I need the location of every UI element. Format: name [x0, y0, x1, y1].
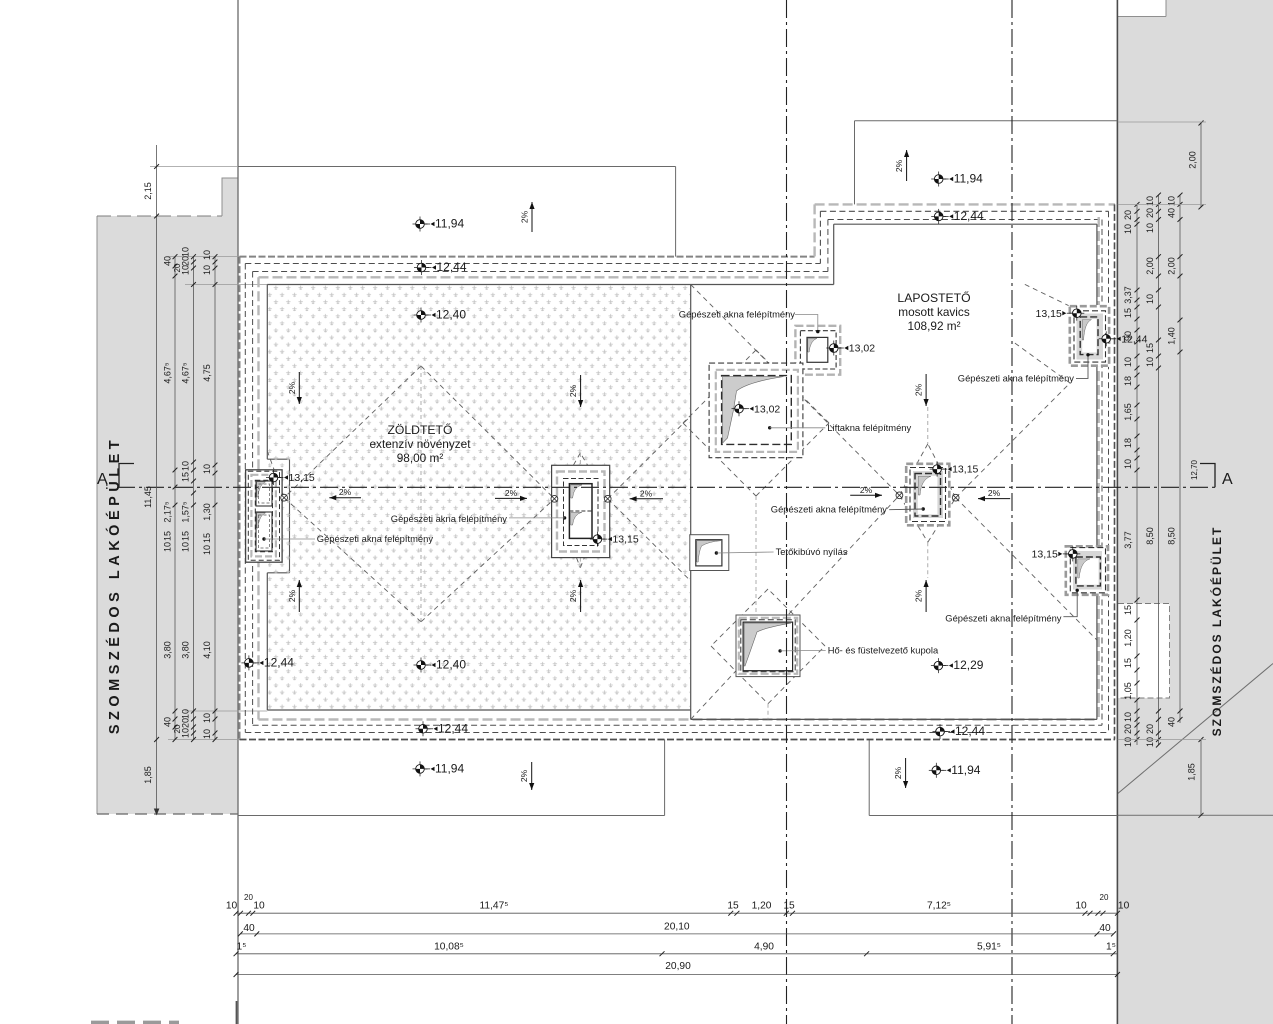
svg-text:2,00: 2,00: [1188, 151, 1198, 169]
svg-text:Gépészeti akna felépítmény: Gépészeti akna felépítmény: [945, 612, 1062, 623]
svg-text:2%: 2%: [894, 159, 904, 172]
svg-text:10,08⁵: 10,08⁵: [434, 941, 464, 952]
svg-text:10: 10: [1123, 357, 1133, 367]
svg-text:1⁵: 1⁵: [1106, 941, 1116, 952]
svg-text:15: 15: [202, 533, 212, 543]
svg-text:2,00: 2,00: [1166, 257, 1176, 275]
svg-text:15: 15: [1123, 605, 1133, 615]
svg-text:4,75: 4,75: [202, 364, 212, 382]
svg-text:4,90: 4,90: [754, 941, 774, 952]
svg-text:10: 10: [1075, 901, 1087, 912]
svg-text:Liftakna felépítmény: Liftakna felépítmény: [827, 422, 911, 433]
svg-text:10: 10: [1145, 294, 1155, 304]
svg-text:2,17⁵: 2,17⁵: [163, 501, 173, 523]
svg-text:20: 20: [1123, 210, 1133, 220]
svg-text:1⁵: 1⁵: [237, 941, 247, 952]
svg-text:10: 10: [163, 542, 173, 552]
svg-text:4,67⁵: 4,67⁵: [163, 362, 173, 384]
svg-text:7,12⁵: 7,12⁵: [927, 901, 951, 912]
svg-text:10: 10: [181, 265, 191, 275]
svg-text:10: 10: [202, 713, 212, 723]
svg-text:13,15: 13,15: [1032, 549, 1058, 561]
svg-text:20: 20: [1100, 893, 1109, 902]
svg-text:13,02: 13,02: [754, 403, 780, 415]
svg-text:ZÖLDTETŐ: ZÖLDTETŐ: [387, 422, 452, 437]
svg-text:15: 15: [181, 531, 191, 541]
svg-text:18: 18: [1123, 376, 1133, 386]
svg-text:15: 15: [163, 531, 173, 541]
svg-text:11,94: 11,94: [435, 762, 464, 776]
svg-text:15: 15: [1145, 343, 1155, 353]
svg-text:90: 90: [1123, 331, 1133, 341]
svg-text:18: 18: [1123, 438, 1133, 448]
svg-text:11,94: 11,94: [951, 763, 980, 777]
svg-text:2%: 2%: [287, 589, 297, 602]
svg-text:10: 10: [202, 265, 212, 275]
svg-text:10: 10: [1145, 737, 1155, 747]
svg-text:13,02: 13,02: [849, 343, 875, 355]
svg-text:2%: 2%: [287, 381, 297, 394]
svg-text:4,67⁵: 4,67⁵: [181, 362, 191, 384]
svg-text:2%: 2%: [914, 589, 924, 602]
svg-text:1,20: 1,20: [1123, 629, 1133, 647]
svg-text:10: 10: [226, 901, 238, 912]
svg-text:LAPOSTETŐ: LAPOSTETŐ: [897, 290, 970, 305]
svg-text:20: 20: [1145, 724, 1155, 734]
svg-text:1,57⁵: 1,57⁵: [181, 501, 191, 523]
svg-text:20: 20: [1145, 208, 1155, 218]
svg-text:2%: 2%: [505, 488, 518, 498]
svg-text:2%: 2%: [640, 488, 653, 498]
svg-text:10: 10: [1123, 459, 1133, 469]
svg-text:40: 40: [163, 256, 173, 266]
svg-text:12,44: 12,44: [264, 656, 294, 670]
svg-text:Hő- és füstelvezető kupola: Hő- és füstelvezető kupola: [828, 644, 939, 655]
svg-text:1,30: 1,30: [202, 503, 212, 521]
svg-text:10: 10: [253, 901, 265, 912]
svg-text:Gépészeti akna felépítmény: Gépészeti akna felépítmény: [317, 533, 434, 544]
svg-text:15: 15: [1123, 658, 1133, 668]
svg-text:3,80: 3,80: [163, 641, 173, 659]
svg-text:40: 40: [163, 717, 173, 727]
svg-text:40: 40: [1166, 208, 1176, 218]
svg-text:1,40: 1,40: [1166, 327, 1176, 345]
svg-text:108,92 m²: 108,92 m²: [907, 319, 960, 333]
svg-text:8,50: 8,50: [1166, 527, 1176, 545]
svg-text:15: 15: [783, 901, 795, 912]
svg-text:20: 20: [181, 718, 191, 728]
svg-text:2%: 2%: [520, 210, 530, 223]
svg-text:Gépészeti akna felépítmény: Gépészeti akna felépítmény: [958, 372, 1075, 383]
svg-text:2%: 2%: [568, 384, 578, 397]
svg-text:2%: 2%: [519, 769, 529, 782]
svg-text:A: A: [97, 471, 108, 488]
svg-text:12,44: 12,44: [437, 260, 467, 274]
svg-text:2,15: 2,15: [143, 182, 153, 200]
svg-text:40: 40: [1166, 717, 1176, 727]
svg-text:20: 20: [181, 256, 191, 266]
svg-text:11,47⁵: 11,47⁵: [480, 901, 509, 912]
svg-text:12,44: 12,44: [954, 209, 984, 223]
svg-text:2%: 2%: [914, 383, 924, 396]
svg-text:10: 10: [202, 729, 212, 739]
svg-text:1,20: 1,20: [752, 901, 772, 912]
svg-text:2%: 2%: [568, 589, 578, 602]
svg-text:5,91⁵: 5,91⁵: [977, 941, 1001, 952]
svg-text:12,70: 12,70: [1190, 459, 1199, 480]
svg-text:13,15: 13,15: [612, 534, 638, 546]
svg-text:40: 40: [1099, 923, 1111, 934]
svg-text:15: 15: [727, 901, 739, 912]
svg-text:1,85: 1,85: [1187, 763, 1197, 781]
svg-text:2%: 2%: [339, 487, 352, 497]
svg-text:2%: 2%: [988, 488, 1001, 498]
svg-text:Gépészeti akna felépítmény: Gépészeti akna felépítmény: [679, 309, 796, 320]
svg-text:1,05: 1,05: [1123, 682, 1133, 700]
svg-text:20: 20: [244, 893, 253, 902]
svg-text:10: 10: [202, 464, 212, 474]
svg-text:12,44: 12,44: [438, 721, 468, 735]
svg-text:10: 10: [1123, 224, 1133, 234]
svg-text:3,80: 3,80: [181, 641, 191, 659]
svg-text:15: 15: [181, 472, 191, 482]
svg-text:3,37: 3,37: [1123, 286, 1133, 304]
svg-text:A: A: [1222, 471, 1233, 488]
svg-text:20,90: 20,90: [665, 961, 691, 972]
svg-text:20,10: 20,10: [664, 921, 690, 932]
svg-text:11,94: 11,94: [954, 172, 983, 186]
svg-text:2%: 2%: [860, 485, 873, 495]
svg-text:extenzív növényzet: extenzív növényzet: [370, 437, 472, 451]
svg-text:SZOMSZÉDOS LAKÓÉPÜLET: SZOMSZÉDOS LAKÓÉPÜLET: [105, 436, 123, 734]
svg-text:Gépészeti akna felépítmény: Gépészeti akna felépítmény: [771, 504, 888, 515]
svg-text:12,29: 12,29: [953, 658, 983, 672]
svg-text:10: 10: [1118, 901, 1130, 912]
svg-text:10: 10: [1123, 737, 1133, 747]
svg-text:11,45: 11,45: [143, 486, 153, 508]
svg-text:12,44: 12,44: [955, 724, 985, 738]
svg-text:11,94: 11,94: [435, 217, 464, 231]
svg-text:SZOMSZÉDOS LAKÓÉPÜLET: SZOMSZÉDOS LAKÓÉPÜLET: [1209, 526, 1224, 737]
svg-text:1,65: 1,65: [1123, 403, 1133, 421]
svg-text:13,15: 13,15: [952, 464, 978, 476]
svg-text:10: 10: [181, 709, 191, 719]
svg-text:10: 10: [1123, 712, 1133, 722]
svg-text:3,77: 3,77: [1123, 531, 1133, 549]
svg-text:12,40: 12,40: [436, 308, 466, 322]
svg-text:4,10: 4,10: [202, 641, 212, 659]
svg-text:Gépészeti akna felépítmény: Gépészeti akna felépítmény: [391, 513, 508, 524]
svg-text:13,15: 13,15: [289, 472, 315, 484]
svg-text:1,85: 1,85: [143, 766, 153, 784]
svg-text:8,50: 8,50: [1145, 527, 1155, 545]
svg-text:2%: 2%: [893, 766, 903, 779]
svg-text:10: 10: [181, 542, 191, 552]
svg-text:Tetőkibúvó nyílás: Tetőkibúvó nyílás: [776, 546, 848, 557]
svg-text:10: 10: [202, 545, 212, 555]
svg-text:10: 10: [181, 728, 191, 738]
svg-text:10: 10: [1145, 223, 1155, 233]
svg-text:mosott kavics: mosott kavics: [898, 305, 970, 319]
svg-text:10: 10: [181, 461, 191, 471]
svg-text:15: 15: [1123, 308, 1133, 318]
svg-text:40: 40: [243, 923, 255, 934]
svg-text:10: 10: [202, 250, 212, 260]
svg-text:20: 20: [1123, 724, 1133, 734]
svg-text:10: 10: [1145, 357, 1155, 367]
svg-text:12,40: 12,40: [436, 658, 466, 672]
svg-text:10: 10: [181, 247, 191, 257]
svg-text:98,00 m²: 98,00 m²: [397, 451, 444, 465]
svg-text:13,15: 13,15: [1036, 308, 1062, 320]
svg-text:2,00: 2,00: [1145, 257, 1155, 275]
